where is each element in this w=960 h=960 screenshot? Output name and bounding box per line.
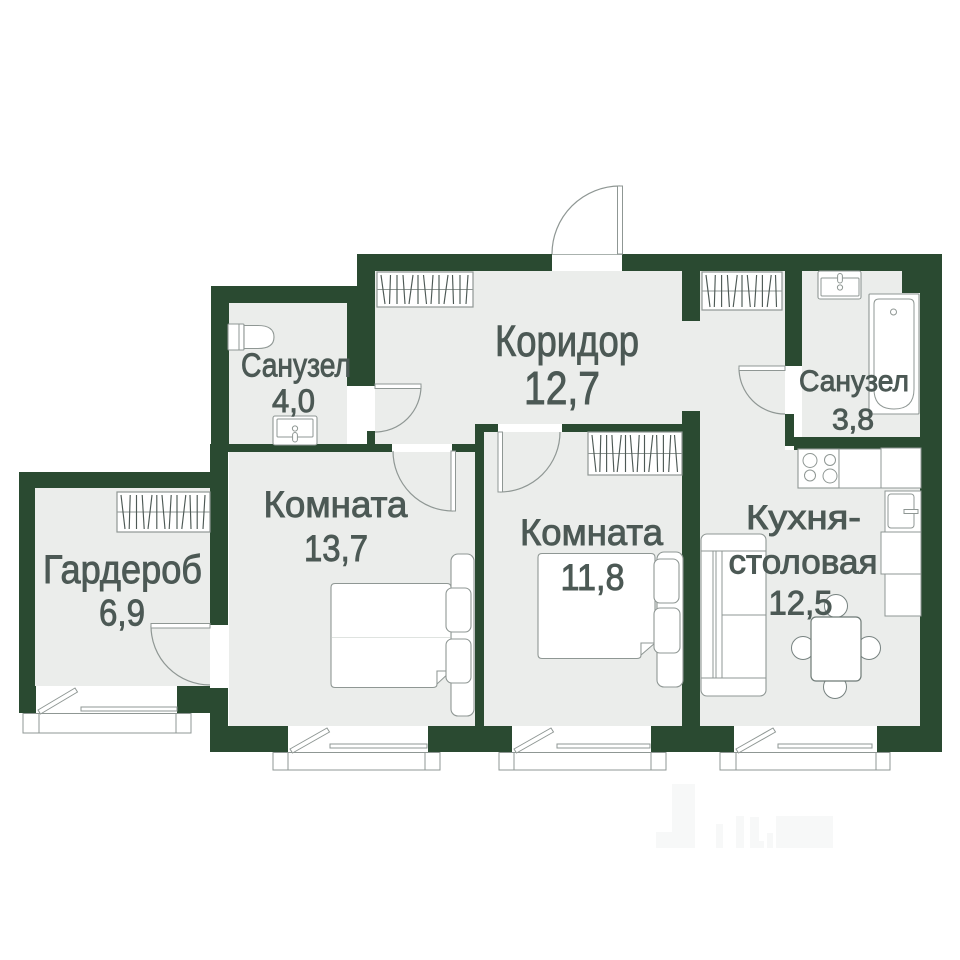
svg-text:Комната: Комната	[264, 484, 408, 525]
svg-text:Санузел: Санузел	[799, 365, 909, 398]
svg-text:Санузел: Санузел	[241, 347, 351, 384]
svg-text:Гардероб: Гардероб	[43, 548, 202, 592]
svg-text:13,7: 13,7	[304, 528, 368, 569]
svg-text:12,5: 12,5	[769, 585, 833, 623]
svg-text:3,8: 3,8	[832, 404, 874, 437]
svg-text:6,9: 6,9	[99, 593, 145, 634]
svg-text:4,0: 4,0	[272, 383, 315, 419]
svg-text:Коридор: Коридор	[495, 317, 639, 366]
svg-text:столовая: столовая	[729, 544, 878, 582]
svg-text:Комната: Комната	[520, 512, 663, 553]
svg-text:11,8: 11,8	[561, 557, 625, 598]
svg-text:12,7: 12,7	[524, 362, 600, 414]
svg-text:Кухня-: Кухня-	[746, 499, 861, 537]
